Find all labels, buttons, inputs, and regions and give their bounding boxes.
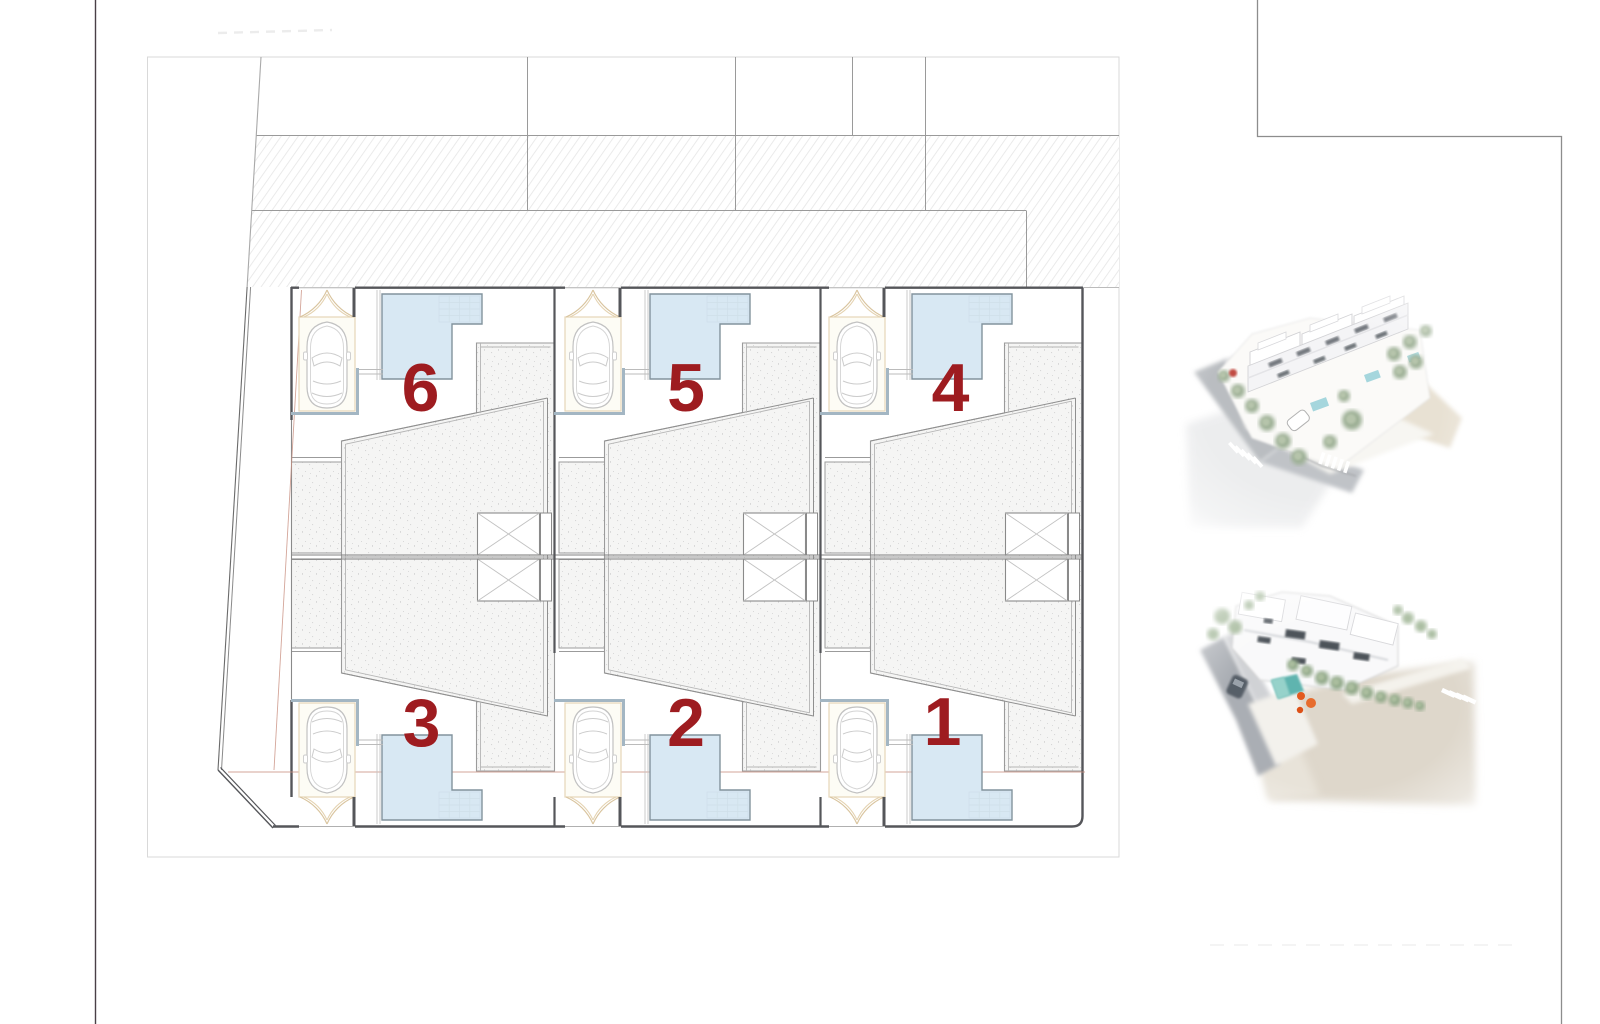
- svg-text:3: 3: [403, 685, 441, 761]
- svg-text:2: 2: [667, 685, 705, 761]
- svg-text:6: 6: [402, 350, 440, 426]
- svg-text:4: 4: [932, 350, 970, 426]
- svg-text:5: 5: [667, 350, 705, 426]
- svg-text:1: 1: [924, 684, 962, 760]
